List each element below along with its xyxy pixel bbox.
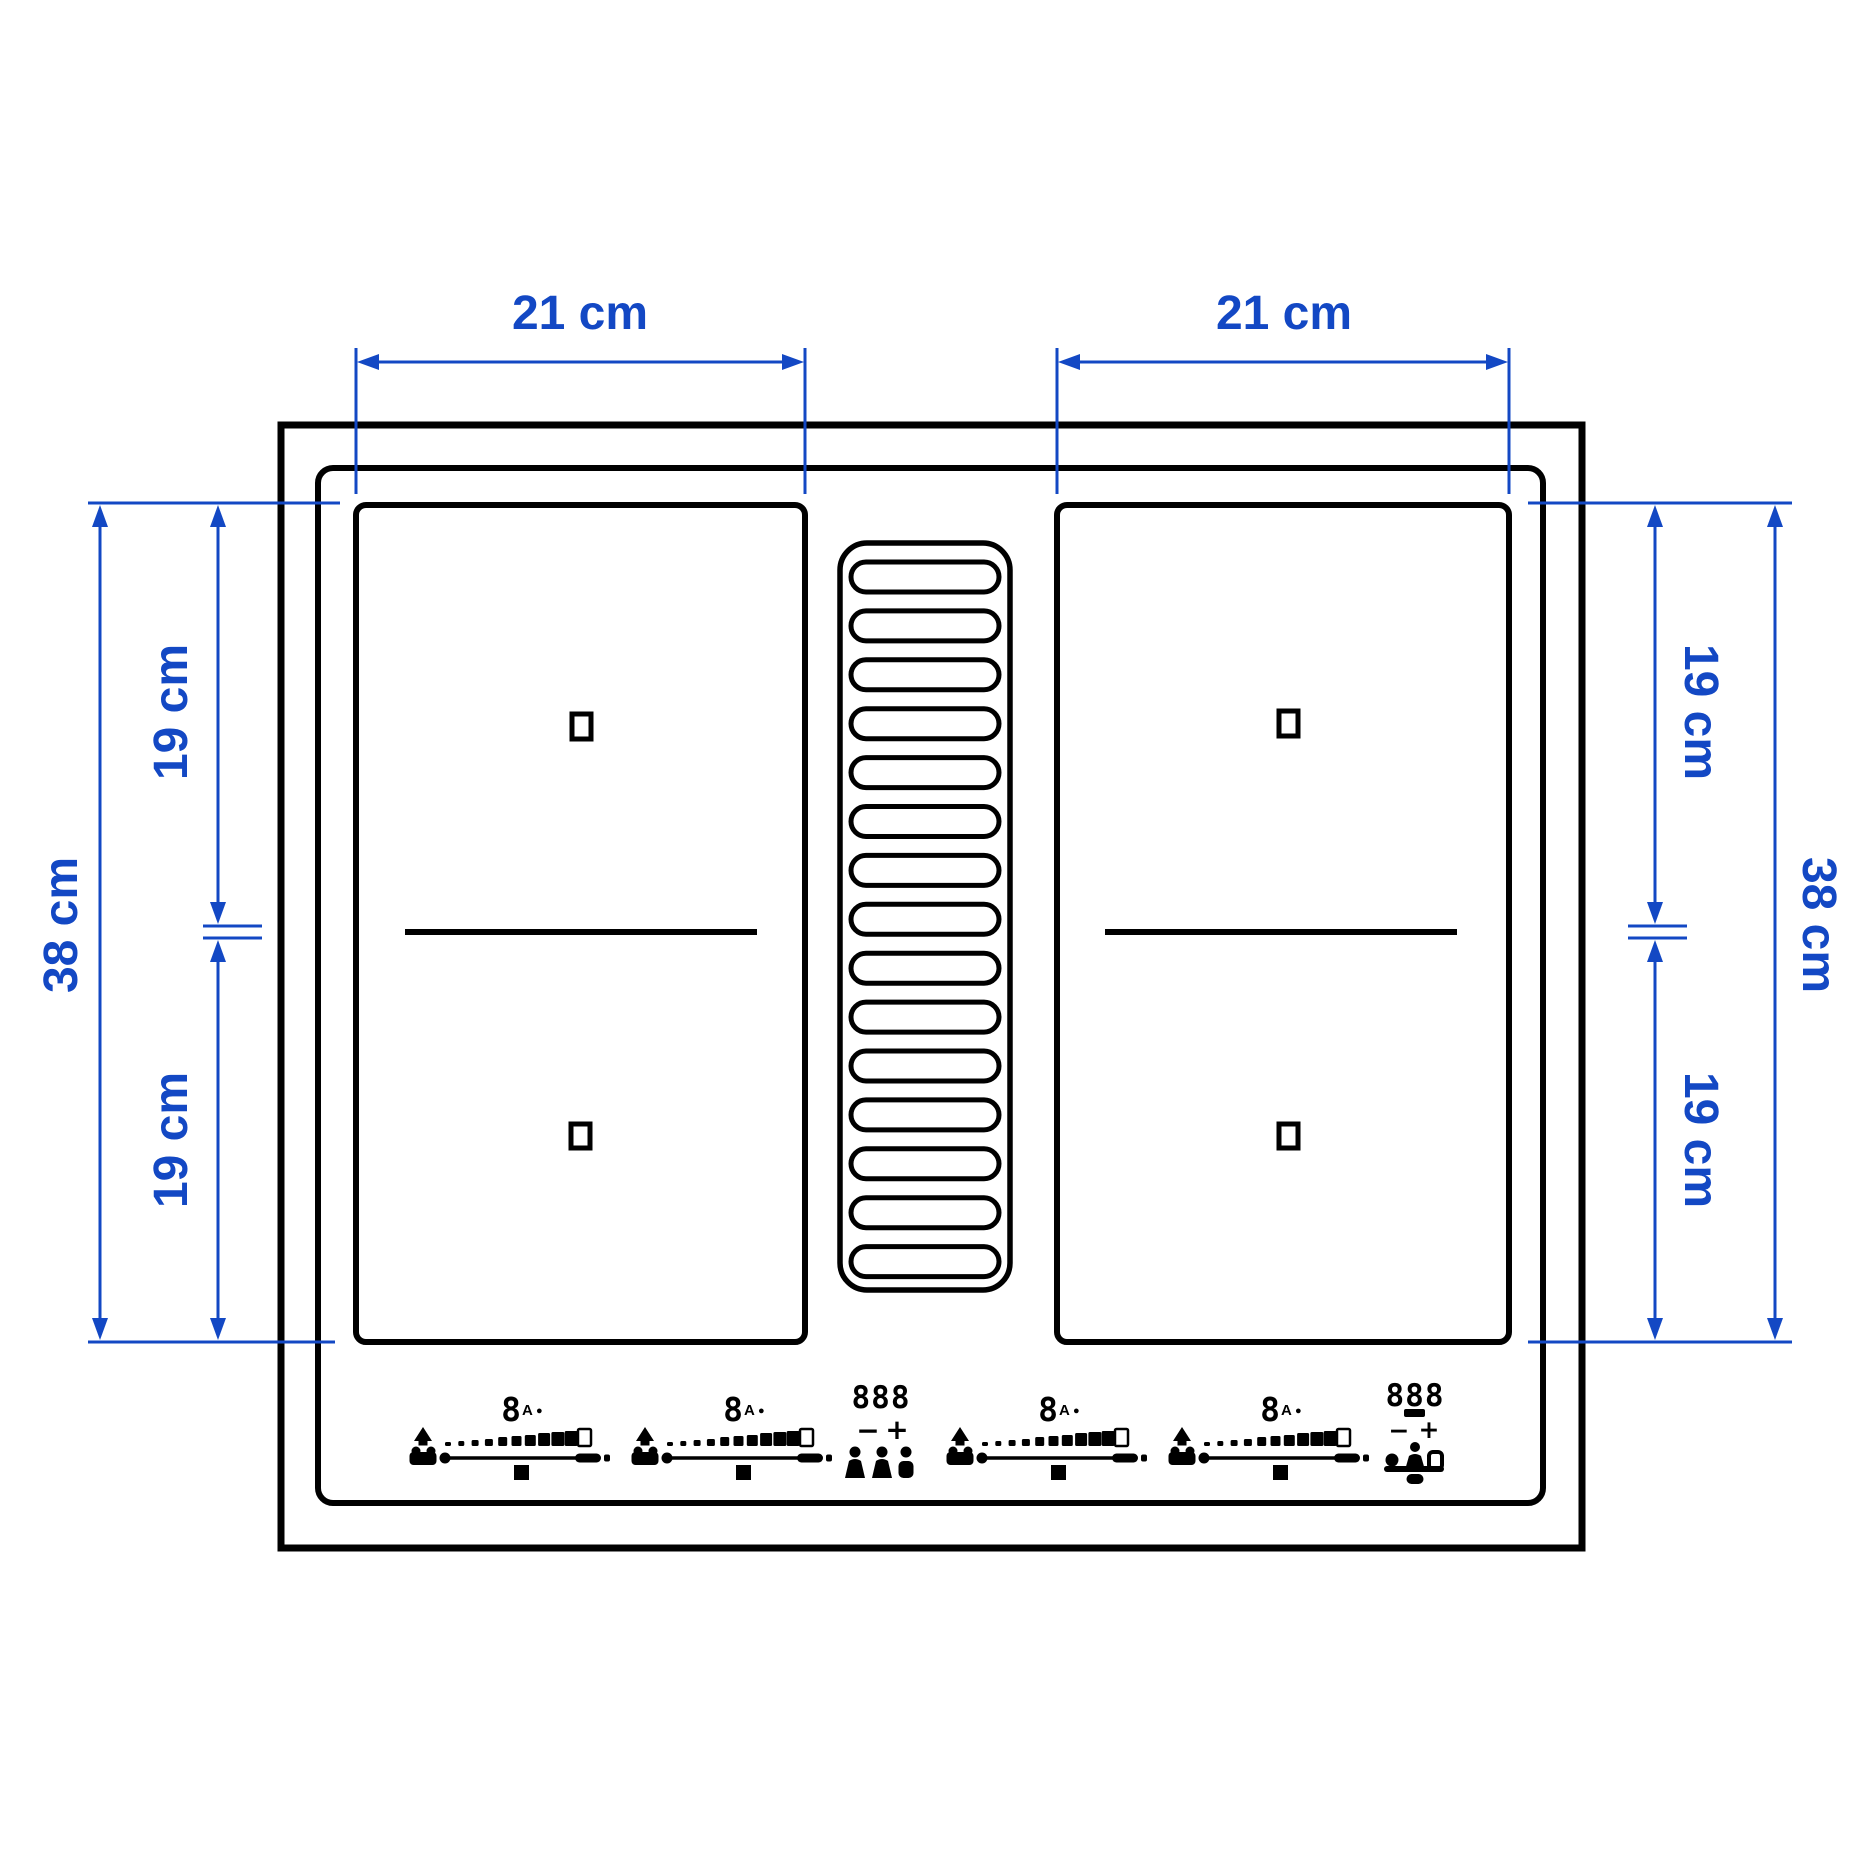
power-level-segment (680, 1441, 686, 1446)
zone-control-group: 8A● (947, 1390, 1148, 1480)
hood-display: 888 (852, 1380, 911, 1416)
zone-slider-end-dash (1141, 1455, 1147, 1462)
pot-icon (947, 1447, 974, 1466)
pan-marker-right-bottom (1279, 1124, 1298, 1148)
vent-slot (851, 1247, 999, 1277)
pot-icon (1169, 1447, 1196, 1466)
pot-icon (632, 1447, 659, 1466)
zone-auto-indicator: A (522, 1402, 533, 1419)
arrowhead-up (1647, 505, 1663, 527)
arrowhead-right (782, 354, 804, 370)
vent-slot (851, 1149, 999, 1179)
extractor-hood-icon (1384, 1442, 1444, 1484)
zone-auto-indicator: A (1059, 1402, 1070, 1419)
dimension-left-total-height: 38 cm (35, 505, 108, 1340)
label-top-right-width: 21 cm (1216, 287, 1352, 340)
pan-marker-left-top (572, 714, 591, 739)
arrowhead-left (1058, 354, 1080, 370)
dimension-left-half-heights: 19 cm 19 cm (145, 505, 262, 1340)
product-dimension-diagram: 21 cm 21 cm 38 cm 19 cm 19 cm (0, 0, 1860, 1860)
vent-slot (851, 904, 999, 934)
zone-status-dot: ● (1073, 1405, 1080, 1417)
power-level-segment (707, 1439, 715, 1446)
zone-slider-end-cap (797, 1454, 823, 1463)
zone-slider-start-dot (977, 1453, 988, 1464)
power-level-segment (1244, 1439, 1252, 1446)
power-level-segment (787, 1431, 800, 1446)
power-level-segment (525, 1435, 536, 1446)
zone-status-dot: ● (1295, 1405, 1302, 1417)
hood-control-right: 888 − + (1384, 1378, 1445, 1484)
arrowhead-down (210, 902, 226, 924)
power-level-segment (1204, 1442, 1210, 1446)
boost-triangle-icon (1173, 1427, 1191, 1441)
hob-diagram-canvas: 21 cm 21 cm 38 cm 19 cm 19 cm (0, 0, 1860, 1860)
boost-triangle-base (641, 1441, 650, 1446)
power-level-segment (472, 1440, 479, 1446)
boost-triangle-icon (636, 1427, 654, 1441)
person-icon (899, 1447, 914, 1479)
label-left-upper-height: 19 cm (145, 644, 198, 780)
dimension-right-total-height: 38 cm (1767, 505, 1845, 1340)
zone-power-display: 8 (723, 1390, 743, 1429)
zone-power-display: 8 (1038, 1390, 1058, 1429)
power-level-segment (720, 1437, 729, 1446)
zone-auto-indicator: A (744, 1402, 755, 1419)
power-level-segment (458, 1441, 464, 1446)
arrowhead-up (1767, 505, 1783, 527)
dimension-top-right-width: 21 cm (1057, 287, 1509, 494)
extractor-vent-slots (851, 562, 999, 1277)
power-level-segment (538, 1433, 550, 1446)
boost-triangle-base (956, 1441, 965, 1446)
boost-triangle-icon (414, 1427, 432, 1441)
power-level-segment (1088, 1432, 1101, 1446)
power-level-segment (694, 1440, 701, 1446)
power-level-segment (1271, 1436, 1281, 1446)
hood-display: 888 (1386, 1378, 1445, 1414)
zone-power-display: 8 (501, 1390, 521, 1429)
power-level-segment (1257, 1437, 1266, 1446)
vent-slot (851, 807, 999, 837)
power-level-segment (747, 1435, 758, 1446)
vent-slot (851, 660, 999, 690)
power-level-segment (773, 1432, 786, 1446)
zone-status-dot: ● (536, 1405, 543, 1417)
zone-slider-start-dot (662, 1453, 673, 1464)
zone-slider-end-dash (604, 1455, 610, 1462)
hood-plus-key: + (885, 1413, 908, 1446)
power-level-ramp (445, 1429, 591, 1446)
vent-slot (851, 1198, 999, 1228)
power-level-segment (760, 1433, 772, 1446)
power-level-segment (982, 1442, 988, 1446)
power-level-segment (512, 1436, 522, 1446)
zone-pause-key (1273, 1465, 1288, 1480)
zone-control-group: 8A● (410, 1390, 611, 1480)
arrowhead-down (1647, 902, 1663, 924)
vent-slot (851, 709, 999, 739)
zone-slider-end-dash (826, 1455, 832, 1462)
vent-slot (851, 611, 999, 641)
power-level-segment (1231, 1440, 1238, 1446)
zone-slider-start-dot (1199, 1453, 1210, 1464)
zone-status-dot: ● (758, 1405, 765, 1417)
power-level-segment (551, 1432, 564, 1446)
vent-slot (851, 562, 999, 592)
power-level-segment (800, 1429, 813, 1446)
zone-pause-key (514, 1465, 529, 1480)
label-top-left-width: 21 cm (512, 287, 648, 340)
zone-slider-start-dot (440, 1453, 451, 1464)
label-left-lower-height: 19 cm (145, 1072, 198, 1208)
zone-slider-end-cap (1334, 1454, 1360, 1463)
pot-icon (410, 1447, 437, 1466)
zone-slider-end-cap (575, 1454, 601, 1463)
zone-slider-end-cap (1112, 1454, 1138, 1463)
arrowhead-down (92, 1318, 108, 1340)
vent-slot (851, 1100, 999, 1130)
power-level-segment (1102, 1431, 1115, 1446)
pan-marker-right-top (1279, 711, 1298, 736)
power-level-segment (1062, 1435, 1073, 1446)
vent-slot (851, 1051, 999, 1081)
power-level-segment (1049, 1436, 1059, 1446)
power-level-ramp (982, 1429, 1128, 1446)
power-level-segment (498, 1437, 507, 1446)
power-level-ramp (667, 1429, 813, 1446)
power-level-segment (1297, 1433, 1309, 1446)
vent-slot (851, 855, 999, 885)
vent-slot (851, 953, 999, 983)
power-level-ramp (1204, 1429, 1350, 1446)
boost-triangle-base (419, 1441, 428, 1446)
boost-triangle-base (1178, 1441, 1187, 1446)
zone-pause-key (1051, 1465, 1066, 1480)
power-level-segment (1009, 1440, 1016, 1446)
power-level-segment (1022, 1439, 1030, 1446)
power-level-segment (1217, 1441, 1223, 1446)
label-left-total-height: 38 cm (35, 857, 88, 993)
hood-minus-key: − (1389, 1416, 1410, 1445)
label-right-lower-height: 19 cm (1674, 1072, 1727, 1208)
left-cooking-zone (356, 505, 805, 1342)
boost-triangle-icon (951, 1427, 969, 1441)
arrowhead-down (210, 1318, 226, 1340)
zone-pause-key (736, 1465, 751, 1480)
arrowhead-up (210, 505, 226, 527)
pawn-icon (872, 1447, 892, 1479)
zone-control-group: 8A● (632, 1390, 833, 1480)
arrowhead-right (1486, 354, 1508, 370)
power-level-segment (667, 1442, 673, 1446)
power-level-segment (565, 1431, 578, 1446)
pawn-icon (845, 1447, 865, 1479)
right-cooking-zone (1057, 505, 1509, 1342)
dimension-right-half-heights: 19 cm 19 cm (1628, 505, 1727, 1340)
hood-control-center: 888 − + (845, 1380, 914, 1478)
zone-slider-end-dash (1363, 1455, 1369, 1462)
power-level-segment (1310, 1432, 1323, 1446)
dimension-top-left-width: 21 cm (356, 287, 805, 494)
power-level-segment (1324, 1431, 1337, 1446)
label-right-upper-height: 19 cm (1674, 644, 1727, 780)
arrowhead-up (92, 505, 108, 527)
power-level-segment (445, 1442, 451, 1446)
power-level-segment (995, 1441, 1001, 1446)
zone-control-group: 8A● (1169, 1390, 1370, 1480)
power-level-segment (1284, 1435, 1295, 1446)
zone-auto-indicator: A (1281, 1402, 1292, 1419)
pan-marker-left-bottom (571, 1124, 590, 1148)
hood-plus-key: + (1419, 1415, 1440, 1444)
power-level-segment (578, 1429, 591, 1446)
power-level-segment (1075, 1433, 1087, 1446)
label-right-total-height: 38 cm (1792, 857, 1845, 993)
vent-slot (851, 1002, 999, 1032)
power-level-segment (1337, 1429, 1350, 1446)
zone-power-display: 8 (1260, 1390, 1280, 1429)
arrowhead-down (1647, 1318, 1663, 1340)
arrowhead-left (357, 354, 379, 370)
power-level-segment (734, 1436, 744, 1446)
arrowhead-down (1767, 1318, 1783, 1340)
hood-minus-key: − (856, 1414, 879, 1447)
power-level-segment (1035, 1437, 1044, 1446)
power-level-segment (1115, 1429, 1128, 1446)
power-level-segment (485, 1439, 493, 1446)
vent-slot (851, 758, 999, 788)
